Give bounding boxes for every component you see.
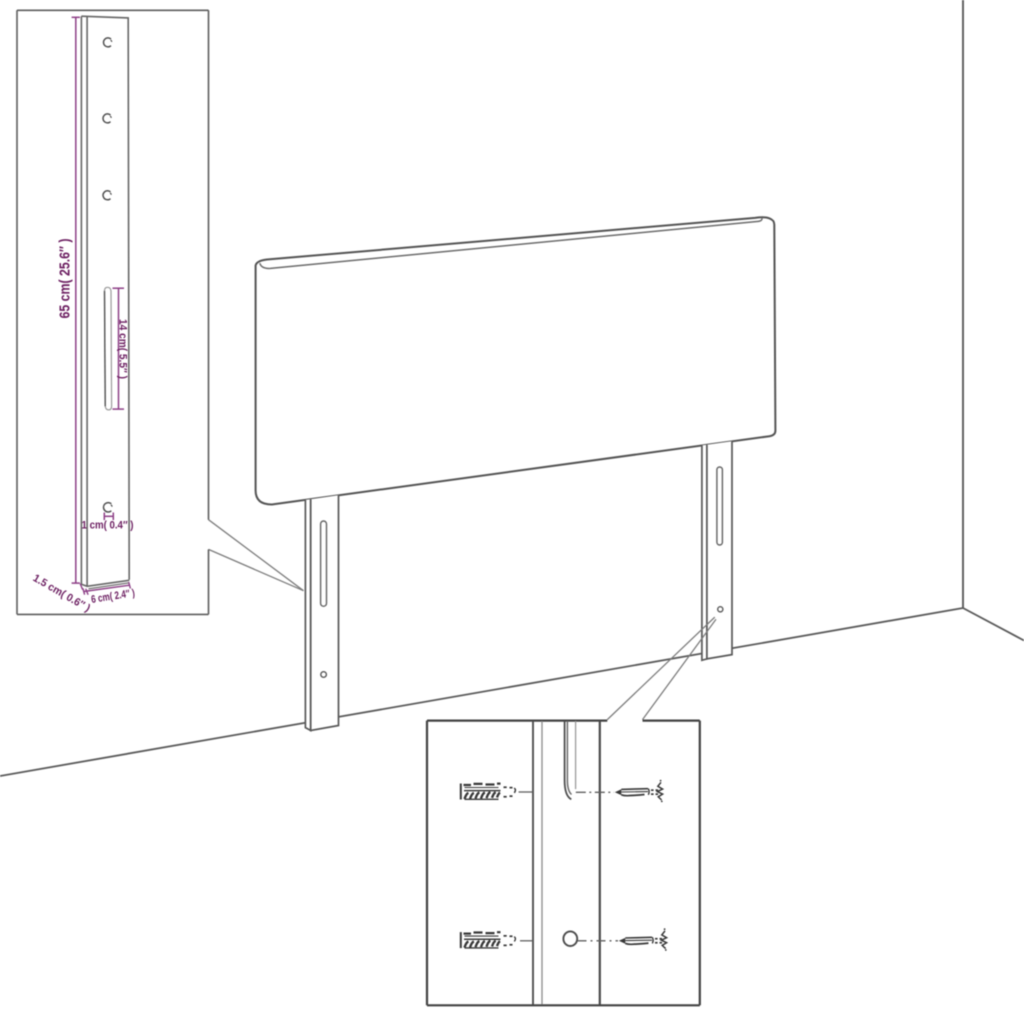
svg-text:1 cm( 0.4″ ): 1 cm( 0.4″ )	[82, 519, 134, 531]
svg-text:65 cm( 25.6″ ): 65 cm( 25.6″ )	[56, 239, 73, 319]
svg-text:14 cm( 5.5″ ): 14 cm( 5.5″ )	[117, 319, 129, 379]
